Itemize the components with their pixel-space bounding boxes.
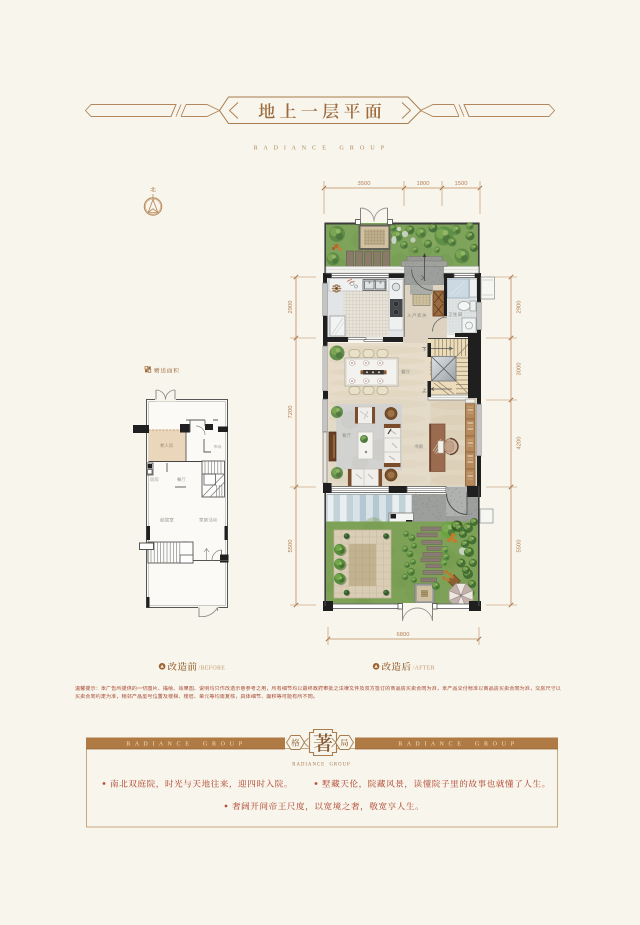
svg-text:/AFTER: /AFTER: [413, 666, 435, 672]
svg-text:1800: 1800: [417, 181, 430, 187]
svg-text:7200: 7200: [288, 406, 294, 419]
svg-text:R A D I A N C E G R O U P: R A D I A N C E G R O U P: [254, 145, 387, 152]
svg-text:R A D I A N C E G R O U P: R A D I A N C E G R O U P: [398, 741, 515, 747]
svg-text:3000: 3000: [517, 363, 523, 376]
svg-text:5500: 5500: [517, 540, 523, 553]
svg-text:4200: 4200: [517, 437, 523, 450]
svg-text:6800: 6800: [397, 632, 410, 638]
svg-text:RADIANCE GROUP: RADIANCE GROUP: [292, 762, 350, 767]
svg-text:2900: 2900: [288, 301, 294, 314]
svg-text:3500: 3500: [358, 181, 371, 187]
svg-text:1500: 1500: [455, 181, 468, 187]
svg-text:/BEFORE: /BEFORE: [199, 666, 226, 672]
svg-text:R A D I A N C E G R O U P: R A D I A N C E G R O U P: [126, 741, 243, 747]
svg-text:5500: 5500: [288, 540, 294, 553]
svg-text:2900: 2900: [517, 301, 523, 314]
